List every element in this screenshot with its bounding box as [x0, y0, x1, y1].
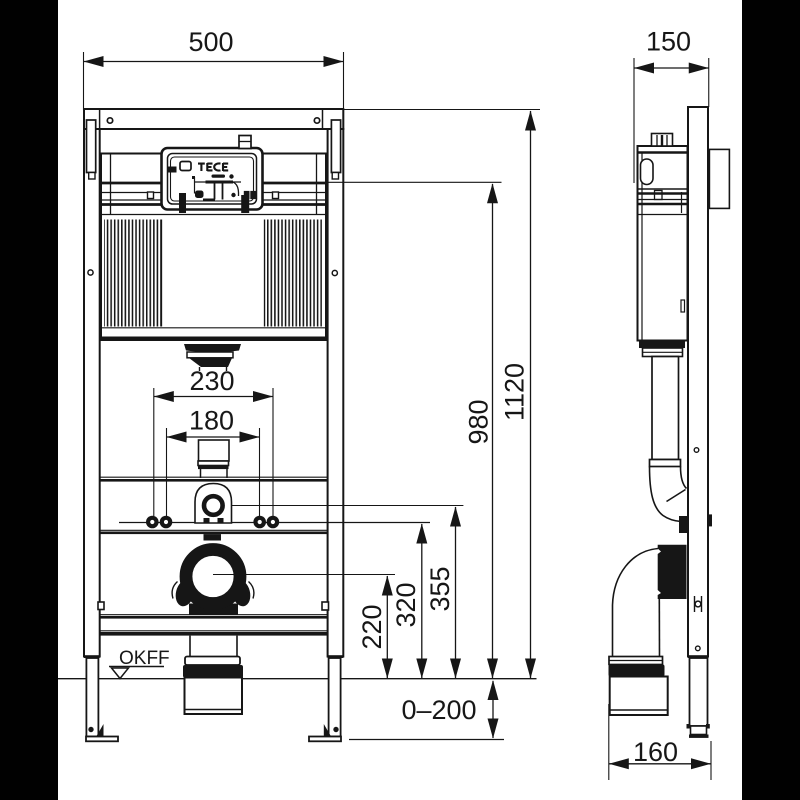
svg-text:230: 230 — [189, 366, 234, 396]
svg-text:0–200: 0–200 — [401, 695, 476, 725]
svg-text:1120: 1120 — [500, 363, 530, 421]
svg-text:220: 220 — [357, 604, 387, 649]
svg-text:320: 320 — [391, 582, 421, 627]
svg-text:980: 980 — [464, 399, 494, 444]
svg-text:160: 160 — [633, 737, 678, 767]
svg-text:355: 355 — [425, 566, 455, 611]
svg-text:180: 180 — [189, 405, 234, 435]
svg-text:500: 500 — [188, 27, 233, 57]
svg-text:150: 150 — [646, 26, 691, 56]
